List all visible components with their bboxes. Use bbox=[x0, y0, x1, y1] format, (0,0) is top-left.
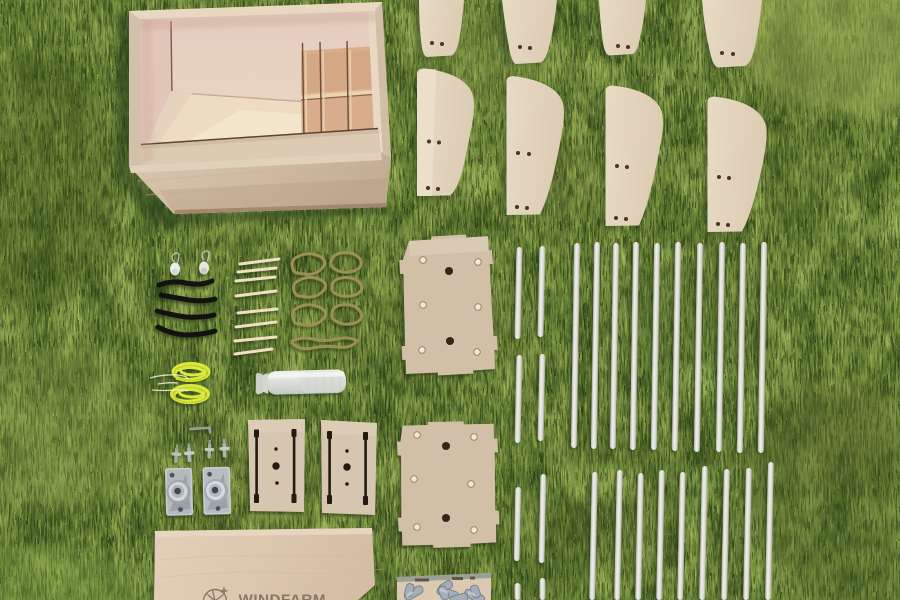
svg-text:WINDFARM: WINDFARM bbox=[239, 592, 327, 600]
